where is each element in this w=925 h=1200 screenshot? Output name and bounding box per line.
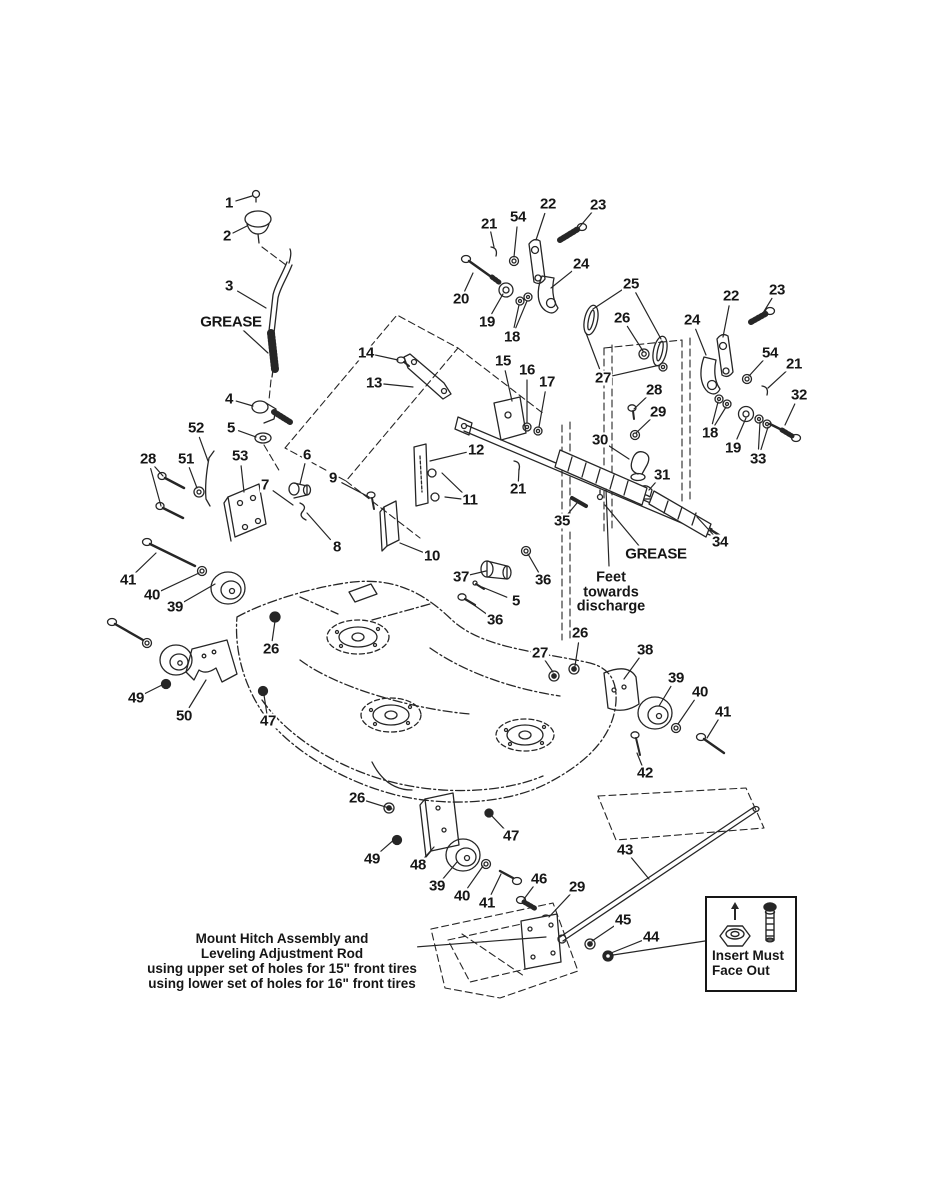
deck-spindle-right [496, 719, 554, 751]
mount-note-line2: Leveling Adjustment Rod [147, 946, 417, 961]
insert-note-line2: Face Out [707, 963, 795, 978]
deck-details [349, 584, 412, 790]
axle-tube-assembly [455, 405, 727, 540]
diagram-canvas: 1234552285153679810121114131516172021542… [0, 0, 925, 1200]
deck-spindle-center [361, 698, 421, 732]
lift-knob-and-rod [245, 191, 292, 378]
mount-hitch-note: Mount Hitch Assembly and Leveling Adjust… [147, 931, 417, 991]
mount-note-line1: Mount Hitch Assembly and [147, 931, 417, 946]
note-leader-lines [243, 330, 705, 955]
deck-spindle-left [327, 620, 389, 654]
grease-note-upper: GREASE [200, 314, 262, 331]
feet-note-line1: Feet [577, 570, 646, 585]
feet-towards-discharge-note: Feet towards discharge [577, 570, 646, 614]
mower-deck-outline [237, 581, 617, 802]
right-gauge-wheel [549, 664, 724, 755]
nut-and-bolt-icon [707, 900, 795, 948]
mount-note-line4: using lower set of holes for 16" front t… [147, 976, 417, 991]
mount-note-line3: using upper set of holes for 15" front t… [147, 961, 417, 976]
hanger-straps [397, 354, 542, 506]
insert-callout-box: Insert Must Face Out [705, 896, 797, 992]
feet-note-line3: discharge [577, 599, 646, 614]
phantom-construction-lines [262, 247, 764, 998]
left-gauge-wheels [108, 539, 281, 696]
upper-linkage [462, 224, 587, 313]
chain-links [582, 304, 670, 371]
insert-note-line1: Insert Must [707, 948, 795, 963]
grease-note-lower: GREASE [625, 546, 687, 563]
feet-note-line2: towards [577, 585, 646, 600]
exploded-view-artwork [0, 0, 925, 1200]
left-bracket-cluster [156, 451, 399, 551]
deck-roller-cluster [458, 547, 531, 606]
trunnion-and-washer [252, 401, 290, 443]
bottom-gauge-wheel [384, 793, 522, 885]
